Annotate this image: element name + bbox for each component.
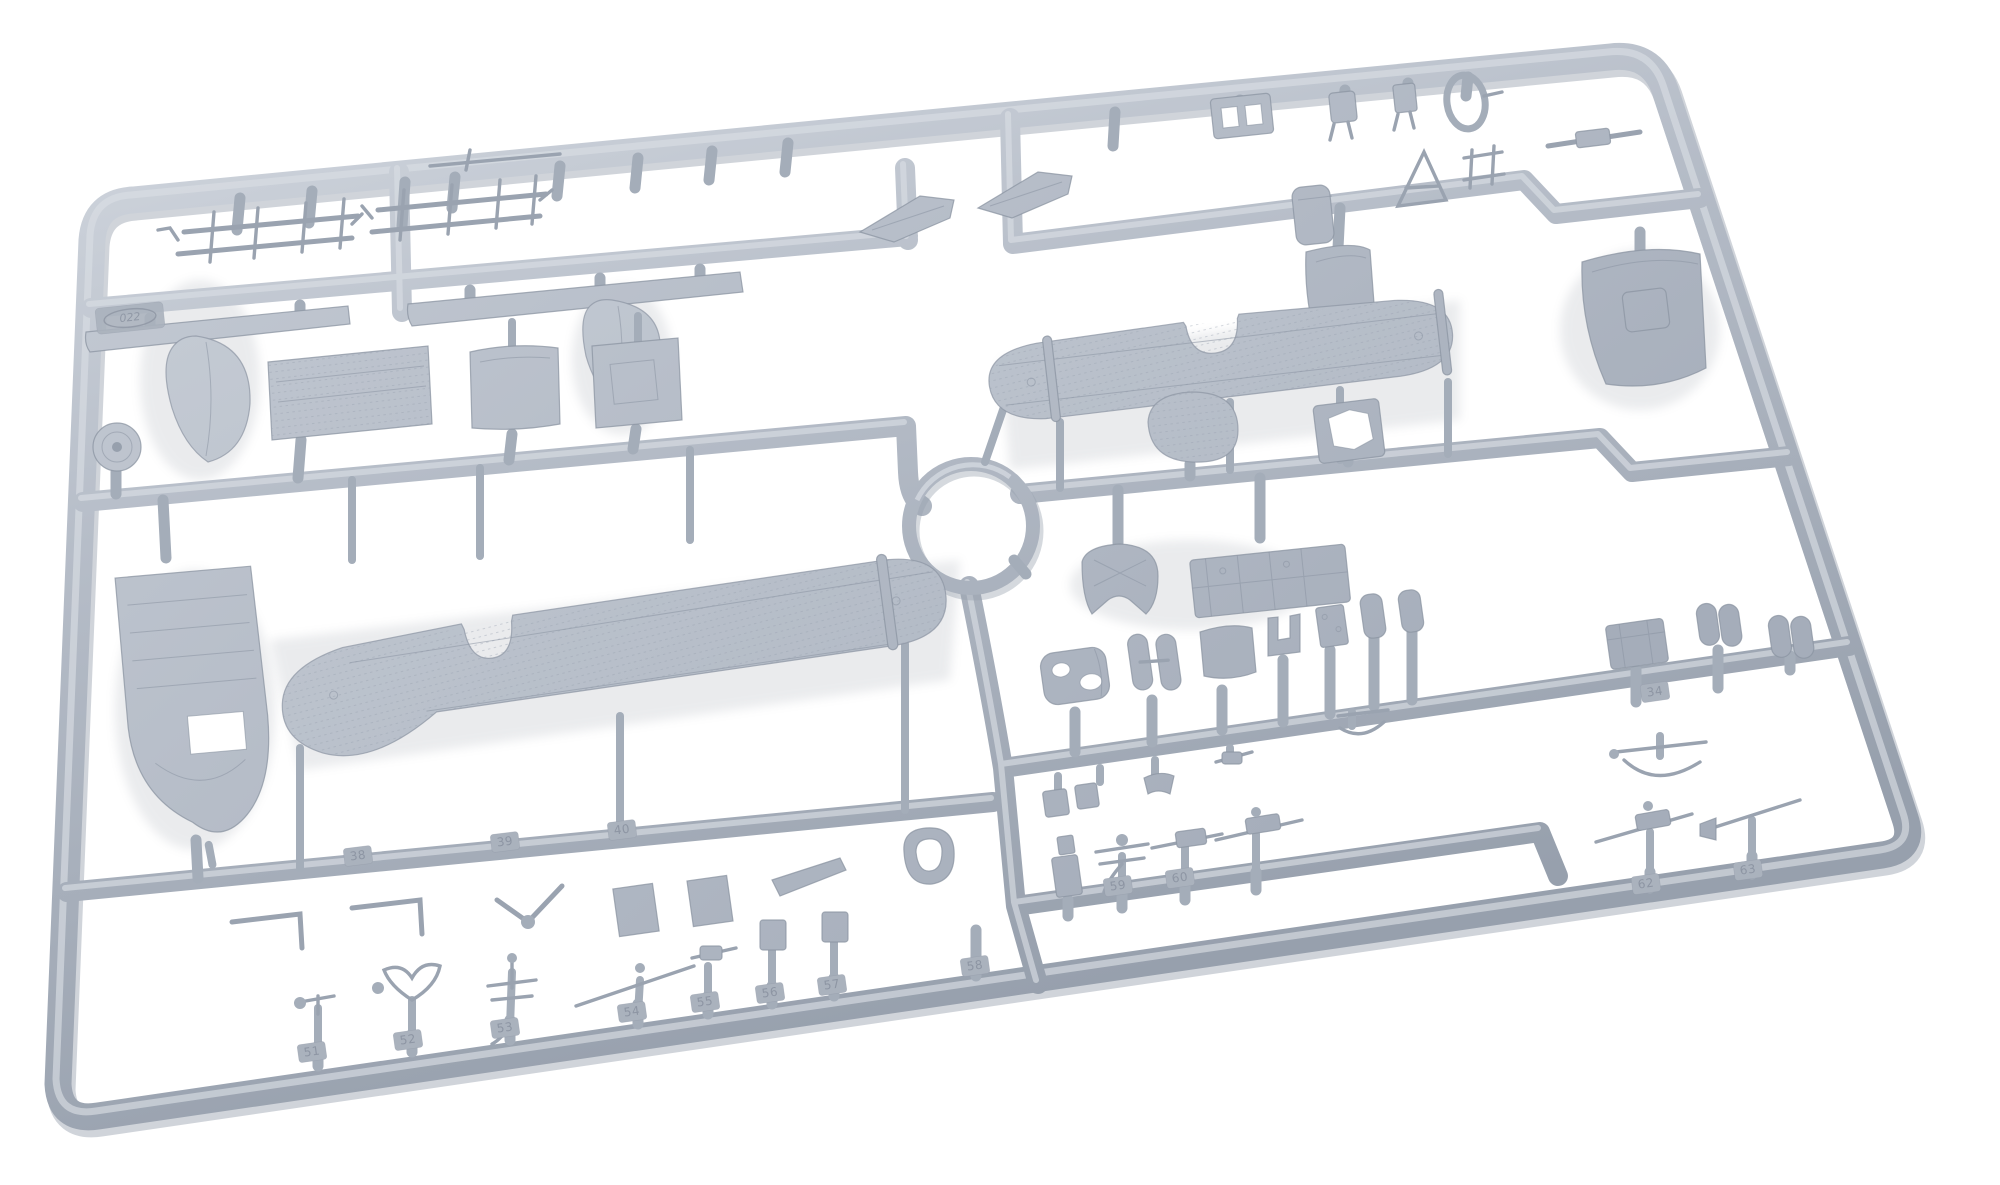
detail-plate [1315, 604, 1348, 648]
part-number: 57 [823, 976, 841, 992]
nose-bowl [1148, 392, 1238, 462]
wheel-disc [93, 423, 141, 471]
quarter-panel [1200, 626, 1256, 679]
fabric-deck-panel [268, 346, 432, 440]
part-number: 56 [761, 984, 779, 1000]
sprue-illustration: 38 39 40 51 52 53 54 55 56 57 58 59 60 6… [0, 0, 2000, 1185]
part-number: 60 [1171, 869, 1189, 885]
part-number: 38 [349, 848, 367, 864]
frame-with-opening [1313, 398, 1386, 464]
part-number: 51 [303, 1043, 321, 1059]
part-number: 53 [496, 1019, 514, 1035]
storage-box [1605, 618, 1669, 670]
part-number: 40 [613, 822, 631, 838]
ammo-drum [1291, 184, 1335, 246]
part-number: 62 [1637, 875, 1655, 891]
part-number: 54 [623, 1003, 641, 1019]
mold-stamp-text: 022 [119, 310, 141, 325]
cowling-hood [1582, 250, 1706, 387]
part-number: 39 [496, 834, 514, 850]
part-number: 55 [696, 993, 714, 1009]
sprue-photo: 38 39 40 51 52 53 54 55 56 57 58 59 60 6… [0, 0, 2000, 1185]
part-number: 34 [1646, 683, 1664, 699]
part-number: 59 [1109, 877, 1127, 893]
part-number: 63 [1739, 861, 1757, 877]
part-number: 52 [399, 1031, 417, 1047]
engine-mount-block [1210, 93, 1274, 139]
fuel-drum [1039, 646, 1112, 707]
part-number: 58 [966, 957, 984, 973]
